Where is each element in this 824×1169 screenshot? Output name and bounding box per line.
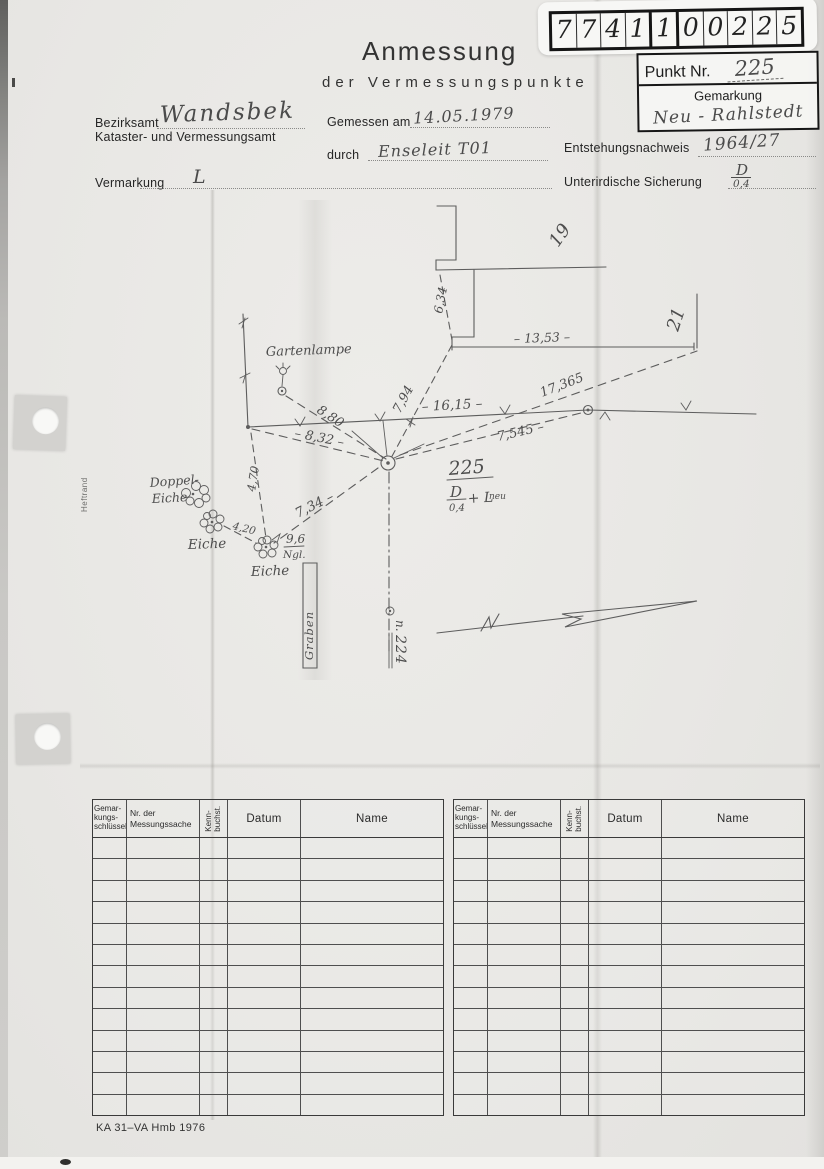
table-cell [228, 1009, 301, 1029]
table-cell [127, 902, 200, 922]
table-cell [662, 902, 804, 922]
ratio-numerator: 9,6 [286, 532, 305, 546]
table-cell [301, 881, 443, 901]
table-cell [488, 1009, 561, 1029]
table-cell [488, 1031, 561, 1051]
table-cell [200, 988, 228, 1008]
table-cell [200, 1009, 228, 1029]
table-cell [228, 966, 301, 986]
table-cell [561, 945, 589, 965]
table-cell [561, 1009, 589, 1029]
table-cell [561, 988, 589, 1008]
table-row [93, 1052, 443, 1073]
table-cell [200, 838, 228, 858]
table-cell [454, 1031, 488, 1051]
scanned-survey-form: Heftrand Anmessung der Vermessungspunkte… [0, 0, 824, 1169]
table-cell [454, 838, 488, 858]
table-cell [488, 838, 561, 858]
table-cell [127, 838, 200, 858]
point-225-frac-num: D [449, 483, 462, 501]
dash-7545 [396, 412, 585, 459]
label-graben: Graben [302, 611, 316, 660]
table-cell [127, 859, 200, 879]
table-body [454, 838, 804, 1115]
table-cell [662, 1031, 804, 1051]
table-cell [93, 838, 127, 858]
table-cell [561, 1073, 589, 1093]
ratio-denominator: Ngl. [282, 549, 306, 561]
table-header: Gemar- kungs- schlüssel Nr. der Messungs… [93, 800, 443, 838]
table-cell [93, 1031, 127, 1051]
table-cell [589, 966, 662, 986]
table-row [454, 881, 804, 902]
table-cell [454, 1052, 488, 1072]
table-cell [662, 1009, 804, 1029]
table-cell [561, 859, 589, 879]
table-row [93, 838, 443, 859]
table-cell [454, 988, 488, 1008]
table-cell [228, 924, 301, 944]
table-row [454, 859, 804, 880]
table-cell [589, 902, 662, 922]
table-cell [200, 1073, 228, 1093]
table-row [93, 945, 443, 966]
table-cell [488, 988, 561, 1008]
table-cell [488, 924, 561, 944]
table-cell [561, 902, 589, 922]
table-cell [127, 1095, 200, 1115]
table-row [454, 1052, 804, 1073]
table-row [454, 1095, 804, 1115]
table-cell [301, 966, 443, 986]
table-cell [301, 1009, 443, 1029]
table-body [93, 838, 443, 1115]
label-house-19: 19 [545, 220, 575, 251]
table-header: Gemar- kungs- schlüssel Nr. der Messungs… [454, 800, 804, 838]
table-cell [662, 988, 804, 1008]
table-row [93, 966, 443, 987]
table-row [454, 966, 804, 987]
measure-17365: 17,365 [538, 370, 586, 400]
measure-7545: 7,545 – [496, 419, 546, 444]
table-cell [228, 838, 301, 858]
table-row [93, 1073, 443, 1094]
table-row [93, 1095, 443, 1115]
table-cell [301, 988, 443, 1008]
table-cell [488, 945, 561, 965]
measure-794: 7,94 [390, 383, 417, 416]
table-cell [127, 881, 200, 901]
point-225-rays [352, 421, 424, 458]
table-row [454, 1073, 804, 1094]
table-cell [301, 1031, 443, 1051]
table-cell [93, 966, 127, 986]
table-cell [301, 859, 443, 879]
col-nr-messungssache: Nr. der Messungssache [488, 800, 561, 837]
label-eiche-2: Eiche [187, 536, 227, 553]
table-row [454, 1031, 804, 1052]
table-row [93, 1031, 443, 1052]
table-cell [200, 966, 228, 986]
table-cell [301, 1095, 443, 1115]
table-cell [200, 902, 228, 922]
table-cell [301, 838, 443, 858]
label-house-21: 21 [662, 305, 689, 334]
north-arrow-n-glyph [481, 614, 499, 631]
point-225-sup: neu [489, 492, 506, 502]
table-cell [93, 881, 127, 901]
label-doppel-eiche-2: Eiche [150, 489, 187, 506]
table-cell [301, 945, 443, 965]
table-cell [454, 945, 488, 965]
table-cell [127, 966, 200, 986]
table-cell [93, 902, 127, 922]
point-225-dot [386, 461, 390, 465]
survey-point-right-dot [587, 409, 590, 412]
table-cell [589, 1052, 662, 1072]
col-kennbuchstabe: Kenn- buchst. [561, 800, 589, 837]
measure-line-1353 [452, 343, 694, 350]
table-cell [488, 881, 561, 901]
table-cell [589, 1095, 662, 1115]
neighbor-value: 224 [392, 634, 408, 665]
table-cell [454, 881, 488, 901]
table-cell [561, 881, 589, 901]
table-cell [93, 859, 127, 879]
table-cell [228, 1073, 301, 1093]
table-cell [589, 988, 662, 1008]
table-cell [93, 1073, 127, 1093]
measure-634: 6,34 [431, 286, 450, 315]
boundary-point [246, 425, 250, 429]
table-cell [200, 859, 228, 879]
table-cell [561, 1095, 589, 1115]
table-cell [488, 1095, 561, 1115]
table-cell [589, 1031, 662, 1051]
table-cell [93, 945, 127, 965]
table-cell [301, 1073, 443, 1093]
table-cell [228, 902, 301, 922]
table-cell [200, 924, 228, 944]
table-cell [454, 924, 488, 944]
building-19-outline [436, 206, 606, 270]
building-19-step [452, 270, 474, 343]
table-cell [561, 924, 589, 944]
ratio-fraction-bar [284, 546, 304, 547]
table-cell [662, 859, 804, 879]
table-cell [200, 1031, 228, 1051]
table-cell [662, 945, 804, 965]
col-nr-messungssache: Nr. der Messungssache [127, 800, 200, 837]
measure-420: 4,20 [230, 520, 257, 538]
table-row [454, 924, 804, 945]
boundary-line-left [243, 314, 248, 427]
table-cell [200, 945, 228, 965]
table-cell [589, 1073, 662, 1093]
table-cell [589, 1009, 662, 1029]
table-cell [301, 902, 443, 922]
table-cell [228, 945, 301, 965]
table-cell [93, 924, 127, 944]
table-cell [454, 1073, 488, 1093]
tree-eiche-3 [254, 534, 280, 558]
table-cell [127, 945, 200, 965]
table-row [454, 945, 804, 966]
lamp-head [280, 368, 287, 375]
col-datum: Datum [589, 800, 662, 837]
messung-table-right: Gemar- kungs- schlüssel Nr. der Messungs… [453, 799, 805, 1116]
table-cell [127, 924, 200, 944]
table-cell [662, 881, 804, 901]
table-cell [127, 1031, 200, 1051]
table-row [93, 988, 443, 1009]
messung-table-left: Gemar- kungs- schlüssel Nr. der Messungs… [92, 799, 444, 1116]
table-cell [662, 1095, 804, 1115]
table-cell [662, 1052, 804, 1072]
table-cell [200, 1052, 228, 1072]
table-cell [127, 1009, 200, 1029]
table-row [93, 902, 443, 923]
col-datum: Datum [228, 800, 301, 837]
label-gartenlampe: Gartenlampe [266, 342, 353, 360]
table-cell [127, 988, 200, 1008]
col-kennbuchstabe: Kenn- buchst. [200, 800, 228, 837]
table-cell [488, 1052, 561, 1072]
table-cell [561, 838, 589, 858]
table-cell [454, 902, 488, 922]
tree-eiche-2 [200, 510, 224, 533]
table-row [93, 859, 443, 880]
label-eiche-3: Eiche [250, 563, 290, 580]
table-cell [228, 1052, 301, 1072]
table-cell [589, 945, 662, 965]
measure-470: 4,70 [244, 465, 262, 493]
table-cell [228, 881, 301, 901]
table-cell [93, 988, 127, 1008]
point-225-label: 225 [447, 456, 486, 481]
measure-880: 8,80 [314, 403, 346, 431]
col-gemarkungsschluessel: Gemar- kungs- schlüssel [93, 800, 127, 837]
table-row [454, 838, 804, 859]
point-224-dot [389, 610, 391, 612]
table-cell [200, 881, 228, 901]
table-cell [93, 1009, 127, 1029]
table-row [454, 902, 804, 923]
measure-734: 7,34 – [293, 489, 337, 522]
table-row [93, 924, 443, 945]
col-name: Name [301, 800, 443, 837]
table-cell [662, 924, 804, 944]
table-cell [589, 924, 662, 944]
table-cell [301, 1052, 443, 1072]
neighbor-prefix: n. [393, 620, 407, 632]
table-row [454, 988, 804, 1009]
neighbor-224-annotation: n. 224 [389, 620, 408, 668]
col-gemarkungsschluessel: Gemar- kungs- schlüssel [454, 800, 488, 837]
table-row [454, 1009, 804, 1030]
form-id: KA 31–VA Hmb 1976 [96, 1122, 205, 1134]
table-cell [454, 859, 488, 879]
table-cell [589, 859, 662, 879]
table-cell [589, 881, 662, 901]
table-cell [488, 1073, 561, 1093]
table-row [93, 1009, 443, 1030]
table-cell [228, 1095, 301, 1115]
table-cell [127, 1073, 200, 1093]
table-cell [228, 988, 301, 1008]
north-arrow-shaft [437, 616, 583, 633]
table-cell [662, 966, 804, 986]
table-cell [454, 966, 488, 986]
col-name: Name [662, 800, 804, 837]
table-cell [561, 966, 589, 986]
table-row [93, 881, 443, 902]
table-cell [228, 859, 301, 879]
table-cell [589, 838, 662, 858]
lamp-point-dot [281, 390, 283, 392]
table-cell [454, 1095, 488, 1115]
point-225-frac-den: 0,4 [449, 503, 465, 514]
table-cell [454, 1009, 488, 1029]
measure-1615: – 16,15 – [421, 396, 483, 415]
table-cell [488, 902, 561, 922]
table-cell [228, 1031, 301, 1051]
table-cell [93, 1052, 127, 1072]
table-cell [200, 1095, 228, 1115]
table-cell [488, 859, 561, 879]
table-cell [662, 1073, 804, 1093]
table-cell [488, 966, 561, 986]
table-cell [93, 1095, 127, 1115]
table-cell [561, 1052, 589, 1072]
measure-1353: – 13,53 – [514, 329, 571, 346]
table-cell [127, 1052, 200, 1072]
north-arrow-head [562, 601, 697, 627]
table-cell [301, 924, 443, 944]
table-cell [561, 1031, 589, 1051]
table-cell [662, 838, 804, 858]
